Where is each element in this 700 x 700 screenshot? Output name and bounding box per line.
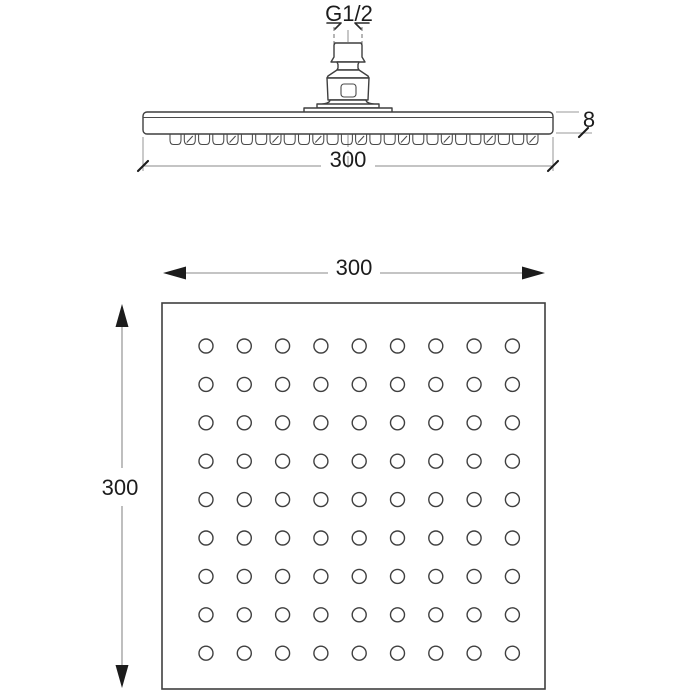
nozzle <box>170 135 181 145</box>
nozzle-hatch <box>230 136 236 143</box>
thickness-value: 8 <box>583 107 595 132</box>
connector-shoulder <box>327 70 369 78</box>
connector-neck <box>337 62 359 70</box>
drawing-canvas: G1/2 <box>0 0 700 700</box>
nozzle <box>470 135 481 145</box>
nozzle <box>341 135 352 145</box>
nozzle <box>199 135 210 145</box>
arrow-left <box>163 267 186 280</box>
connector-detail <box>341 84 356 97</box>
connector-nut <box>331 43 365 62</box>
nozzle-hatch <box>273 136 279 143</box>
face-view: 300 300 <box>102 255 545 689</box>
nozzle <box>327 135 338 145</box>
side-profile-view: G1/2 <box>138 1 595 172</box>
nozzle <box>213 135 224 145</box>
nozzle <box>427 135 438 145</box>
nozzle <box>299 135 310 145</box>
nozzle <box>370 135 381 145</box>
nozzle <box>241 135 252 145</box>
nozzle-hatch <box>187 136 193 143</box>
nozzle <box>384 135 395 145</box>
dimension-thickness: 8 <box>556 107 595 137</box>
technical-drawing: G1/2 <box>0 0 700 700</box>
nozzle <box>284 135 295 145</box>
side-width-value: 300 <box>330 147 367 172</box>
nozzle <box>256 135 267 145</box>
face-width-value: 300 <box>336 255 373 280</box>
face-height-value: 300 <box>102 475 139 500</box>
nozzle <box>413 135 424 145</box>
arrow-up <box>116 304 129 327</box>
arrow-down <box>116 665 129 688</box>
nozzle-hatch <box>487 136 493 143</box>
nozzle-hatch <box>358 136 364 143</box>
nozzle <box>498 135 509 145</box>
nozzle-hatch <box>315 136 321 143</box>
arrow-right <box>522 267 545 280</box>
dimension-face-width: 300 <box>163 255 545 280</box>
swivel-connector <box>304 43 392 113</box>
head-plate-side <box>143 112 553 134</box>
nozzle-row <box>170 135 538 145</box>
nozzle-hatch <box>530 136 536 143</box>
nozzle-hatch <box>444 136 450 143</box>
dimension-face-height: 300 <box>102 304 139 688</box>
nozzle <box>513 135 524 145</box>
nozzle <box>456 135 467 145</box>
nozzle-hatch <box>401 136 407 143</box>
